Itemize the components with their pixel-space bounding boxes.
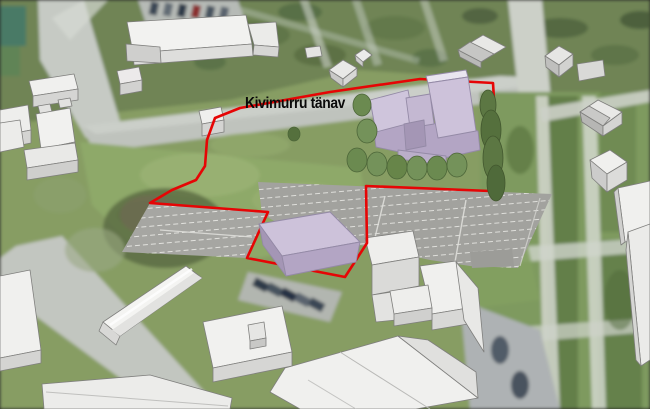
- building-small-box-2: [199, 107, 224, 136]
- map-3d-viewport[interactable]: Kivimurru tänav: [0, 0, 650, 409]
- parking-pad-east: [470, 249, 514, 268]
- sports-court: [0, 6, 26, 46]
- map-canvas[interactable]: Kivimurru tänav: [0, 0, 650, 409]
- street-label: Kivimurru tänav: [245, 95, 346, 112]
- shed-allotment-1: [305, 46, 322, 58]
- building-small-box-1: [117, 67, 142, 95]
